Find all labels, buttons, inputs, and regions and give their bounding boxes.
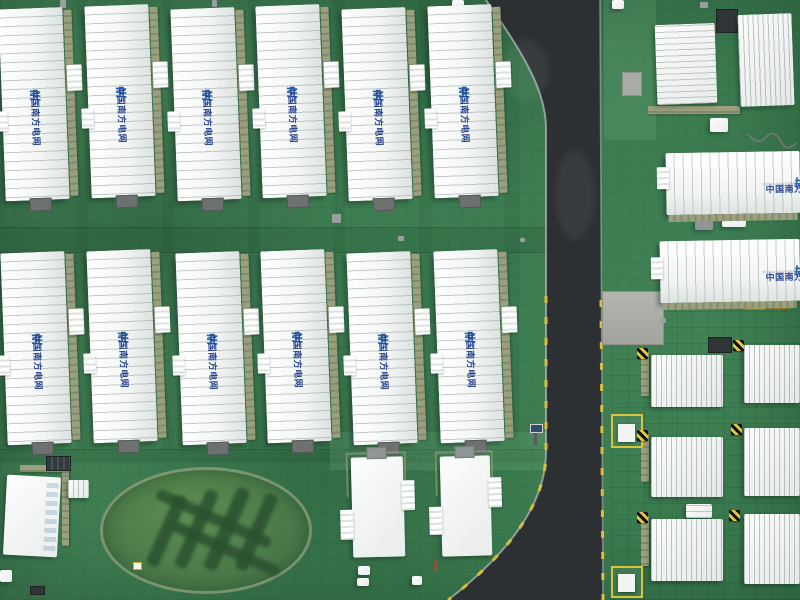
walkway-strip xyxy=(641,516,649,566)
ground-marker xyxy=(520,238,525,242)
small-equipment-box xyxy=(357,578,369,586)
battery-container: 中国南方电网 xyxy=(433,249,514,444)
brand-mark: 中国南方电网 xyxy=(0,279,79,388)
rooftop-item xyxy=(212,0,217,7)
brand-label: 中国南方电网 xyxy=(117,331,132,388)
auxiliary-building xyxy=(440,455,493,556)
battery-container: 中国南方电网 xyxy=(84,4,165,199)
brand-label: 中国南方电网 xyxy=(458,86,473,143)
small-equipment-box xyxy=(412,576,422,585)
brand-mark: 中国南方电网 xyxy=(81,277,165,386)
brand-label: 中国南方电网 xyxy=(29,89,44,146)
small-equipment-box xyxy=(0,570,12,582)
converter-cube-unit xyxy=(744,514,800,584)
container-end-equipment xyxy=(373,198,395,212)
container-side-unit xyxy=(488,477,502,507)
rooftop-unit-container xyxy=(655,23,718,105)
ground-marker xyxy=(332,214,341,223)
hazard-stripe-marker xyxy=(637,512,648,523)
hazard-stripe-marker xyxy=(733,340,744,351)
aerial-photo-energy-storage-station: 中国南方电网 中国南方电网 中国南方电网 中国南方电网 中国南方电网 中国南方电… xyxy=(0,0,800,600)
battery-container: 中国南方电网 xyxy=(255,4,336,199)
battery-container: 中国南方电网 xyxy=(427,4,508,199)
rooftop-item xyxy=(700,2,708,8)
garden-marker xyxy=(133,562,142,570)
brand-label: 中国南方电网 xyxy=(201,89,216,146)
brand-mark: 中国南方电网 xyxy=(250,32,334,141)
brand-mark: 中国南方电网 xyxy=(422,32,506,141)
roof-equipment xyxy=(454,446,474,459)
brand-label: 中国南方电网 xyxy=(372,89,387,146)
battery-container: 中国南方电网 xyxy=(86,249,167,444)
small-post xyxy=(434,560,438,572)
brand-mark: 中国南方电网 xyxy=(0,35,77,144)
container-end-equipment xyxy=(292,440,314,454)
brand-mark: 中国南方电网 xyxy=(255,277,339,386)
battery-container-horizontal: 中国南方电网CHINA SOUTHERN POWER GRID xyxy=(665,151,800,215)
battery-container: 中国南方电网 xyxy=(341,7,422,202)
solar-panel xyxy=(46,456,71,471)
sensor-post xyxy=(534,433,537,445)
converter-cube-unit xyxy=(651,519,723,581)
hazard-stripe-marker xyxy=(637,348,648,359)
ground-marker xyxy=(660,318,666,323)
brand-label: 中国南方电网 xyxy=(291,331,306,388)
converter-cube-unit xyxy=(651,355,723,407)
battery-container-horizontal: 中国南方电网CHINA SOUTHERN POWER GRID xyxy=(659,239,800,303)
container-end-equipment xyxy=(32,442,54,456)
hazard-stripe-marker xyxy=(731,424,742,435)
solar-sensor-panel xyxy=(530,424,543,433)
brand-label-en: CHINA SOUTHERN POWER GRID xyxy=(763,181,800,186)
road-curb-dashes-right xyxy=(601,300,603,600)
auxiliary-building xyxy=(351,456,406,557)
hazard-stripe-marker xyxy=(729,510,740,521)
pad-device xyxy=(618,574,635,592)
container-side-unit xyxy=(401,480,415,510)
container-end-equipment xyxy=(118,440,140,454)
pad-device xyxy=(618,424,635,442)
concrete-pad xyxy=(602,291,664,345)
small-equipment-box xyxy=(686,504,712,518)
container-side-unit xyxy=(657,167,669,189)
converter-cube-unit xyxy=(744,428,800,496)
equipment-box-dark xyxy=(708,337,732,353)
container-side-unit xyxy=(340,510,354,540)
small-equipment-box xyxy=(710,118,728,132)
concrete-pad-small xyxy=(622,72,642,96)
brand-mark: 中国南方电网 xyxy=(336,35,420,144)
rooftop-equipment-box xyxy=(716,9,738,33)
container-side-unit xyxy=(651,257,663,279)
roof-detail xyxy=(43,481,59,552)
brand-mark: 中国南方电网 xyxy=(341,279,425,388)
yellow-equipment-pad xyxy=(611,566,643,598)
battery-container: 中国南方电网 xyxy=(0,7,80,202)
container-end-equipment xyxy=(116,195,138,209)
brand-label-en: CHINA SOUTHERN POWER GRID xyxy=(763,269,800,274)
small-equipment-box xyxy=(358,566,370,575)
container-end-equipment xyxy=(202,198,224,212)
battery-container: 中国南方电网 xyxy=(346,251,427,446)
battery-container: 中国南方电网 xyxy=(170,7,251,202)
auxiliary-building xyxy=(3,475,61,558)
small-equipment-box xyxy=(612,0,624,9)
equipment-rack xyxy=(68,480,89,498)
equipment-box-dark xyxy=(30,586,45,595)
road-wear-mark xyxy=(555,150,595,240)
brand-label: 中国南方电网 xyxy=(286,86,301,143)
battery-container: 中国南方电网 xyxy=(260,249,341,444)
brand-label: 中国南方电网 xyxy=(115,86,130,143)
container-end-equipment xyxy=(207,442,229,456)
brand-label: 中国南方电网 xyxy=(464,331,479,388)
brand-mark: 中国南方电网 xyxy=(428,277,512,386)
rooftop-unit-container xyxy=(737,13,794,107)
hazard-stripe-marker xyxy=(637,430,648,441)
walkway-strip xyxy=(648,106,740,114)
ground-marker xyxy=(398,236,404,241)
oval-hedge-garden xyxy=(100,467,312,594)
container-end-equipment xyxy=(459,195,481,209)
container-end-equipment xyxy=(287,195,309,209)
container-end-equipment xyxy=(30,198,52,212)
battery-container: 中国南方电网 xyxy=(0,251,81,446)
battery-container: 中国南方电网 xyxy=(175,251,256,446)
roof-equipment xyxy=(366,447,386,460)
brand-mark: 中国南方电网 xyxy=(79,32,163,141)
brand-label: 中国南方电网 xyxy=(206,333,221,390)
brand-mark: 中国南方电网 xyxy=(170,279,254,388)
converter-cube-unit xyxy=(651,437,723,497)
converter-cube-unit xyxy=(744,345,800,403)
brand-mark: 中国南方电网 xyxy=(165,35,249,144)
container-side-unit xyxy=(429,507,443,535)
brand-label: 中国南方电网 xyxy=(377,333,392,390)
brand-label: 中国南方电网 xyxy=(31,333,46,390)
